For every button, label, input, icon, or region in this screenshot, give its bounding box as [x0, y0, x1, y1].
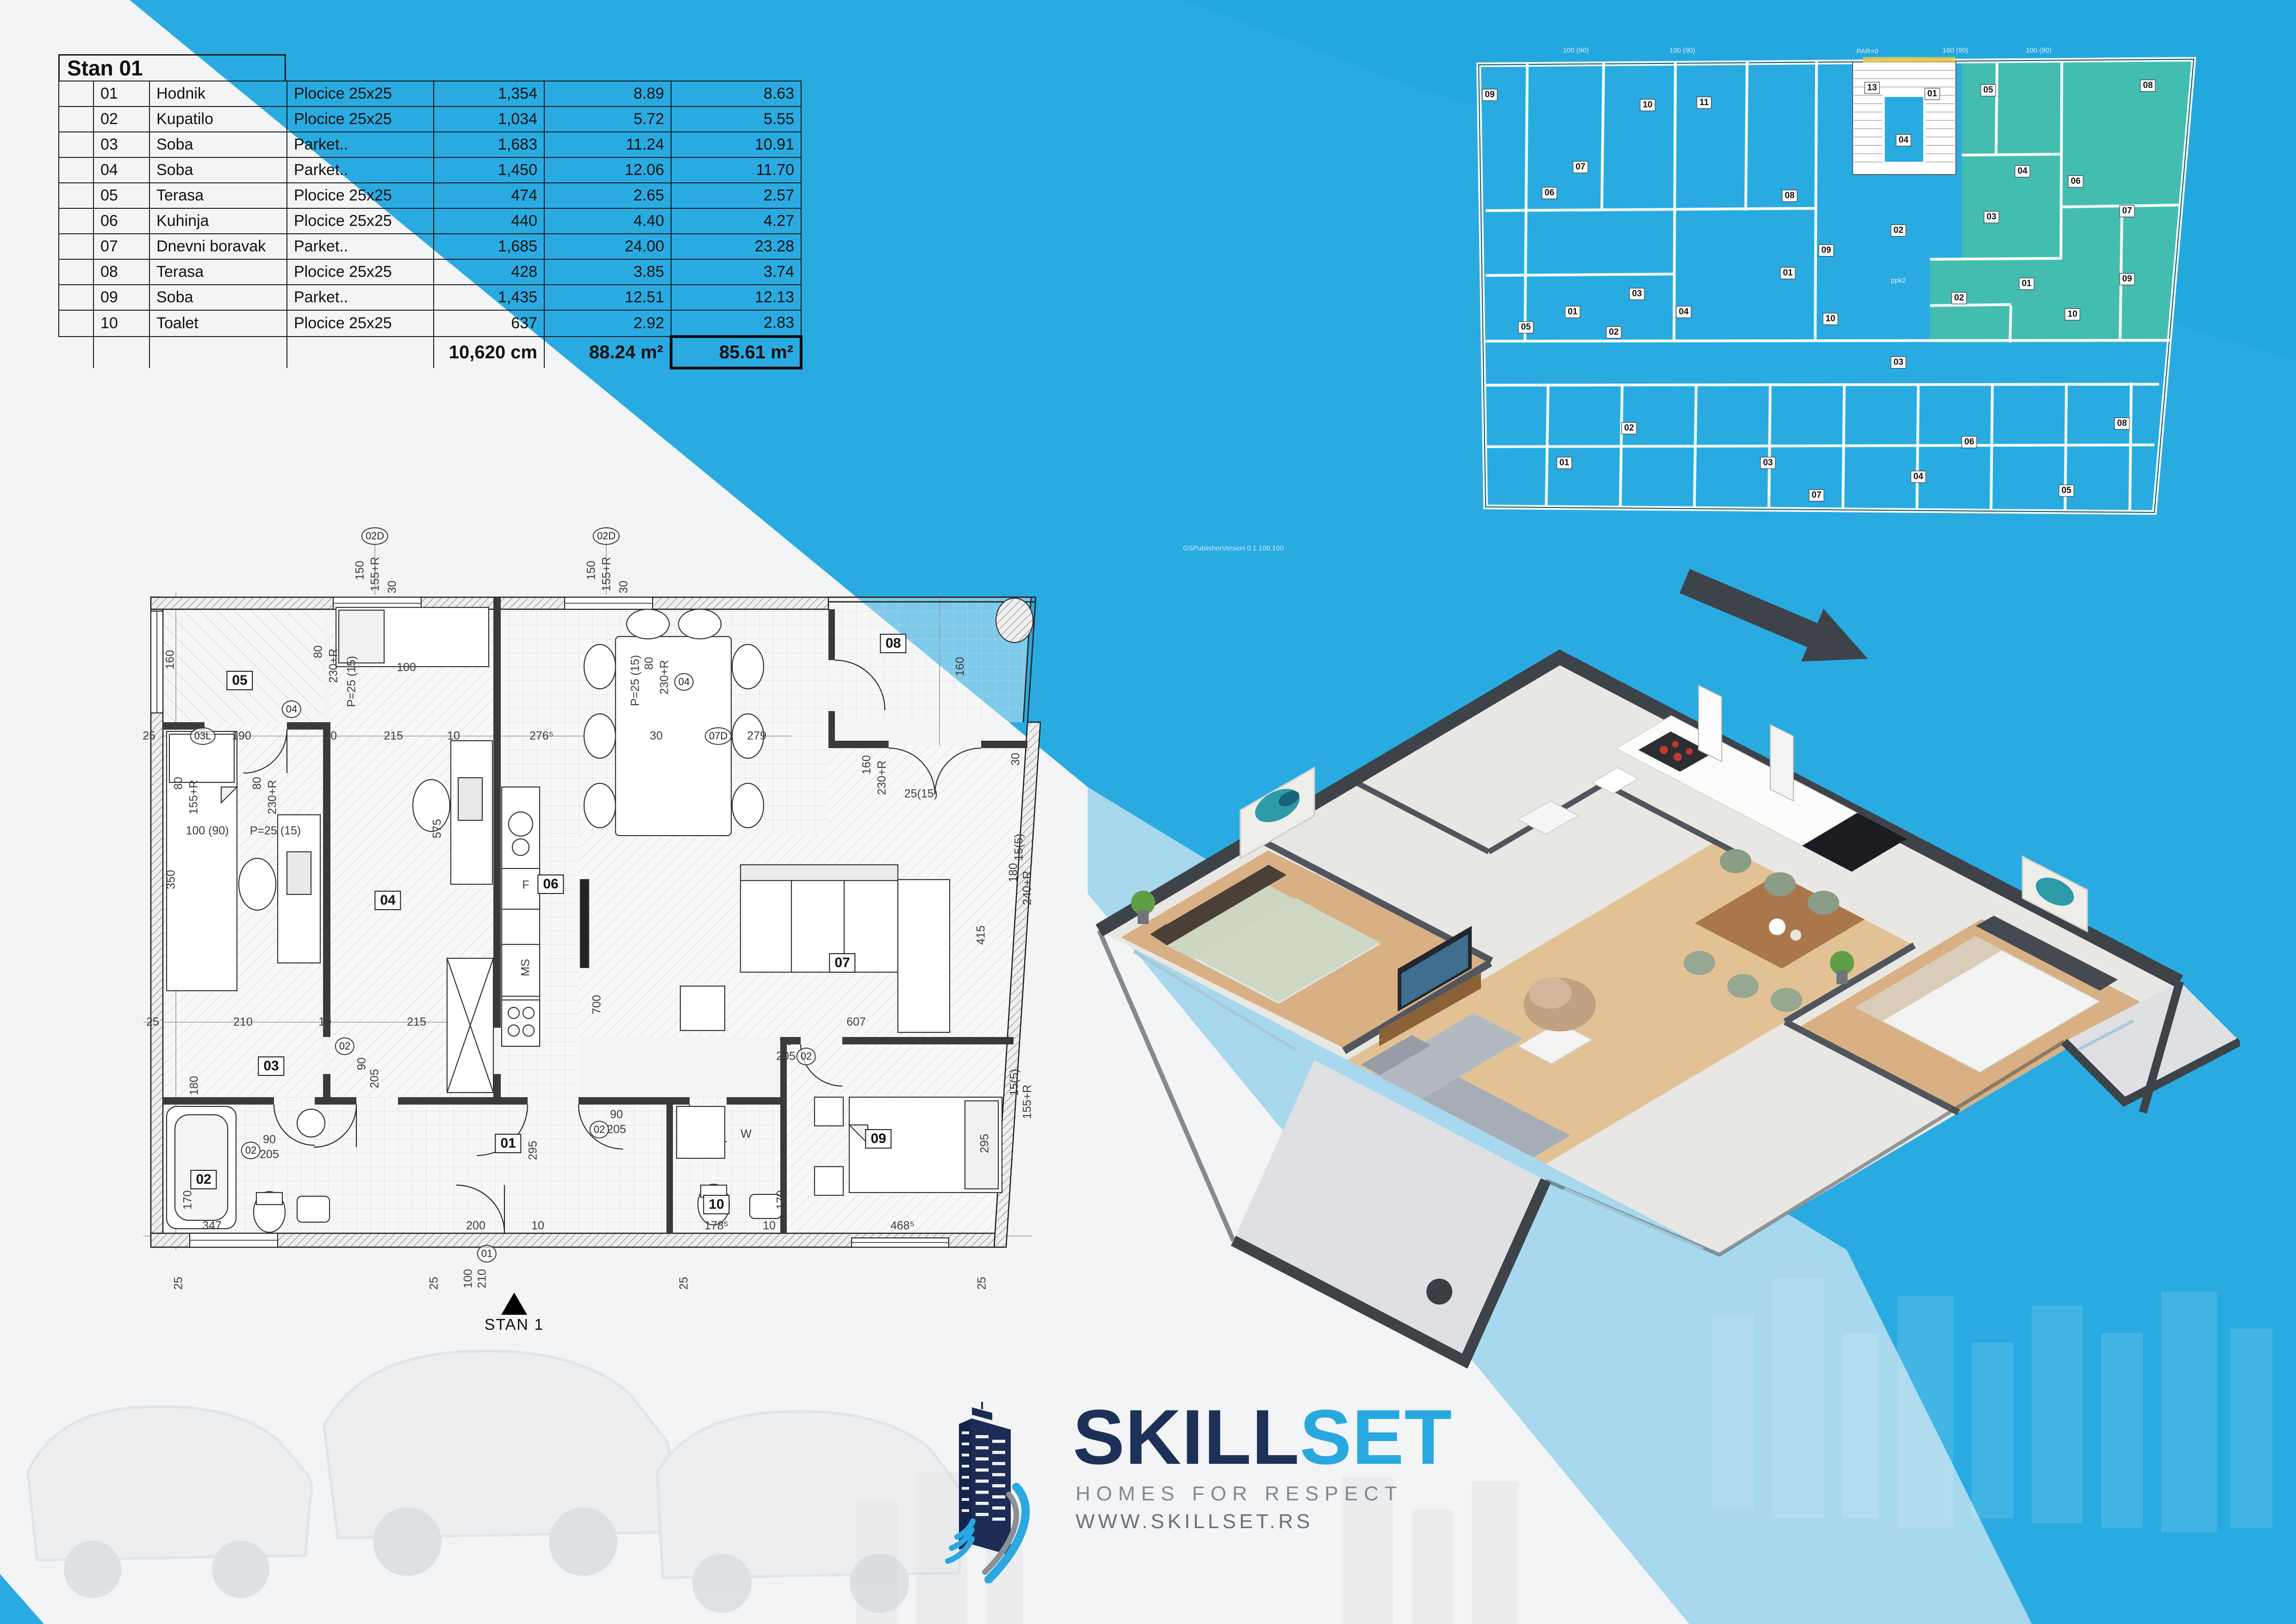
plan-dimension-label: P=25 (15): [345, 656, 359, 707]
overview-unit-label: 11: [1697, 97, 1711, 109]
overview-unit-label: 10: [1640, 99, 1655, 111]
logo-tagline: HOMES FOR RESPECT: [1073, 1482, 1452, 1505]
table-cell: Kuhinja: [149, 208, 287, 234]
overview-unit-label: 06: [2068, 175, 2083, 187]
plan-dimension-label: 30: [324, 730, 337, 743]
plan-dimension-label: 06: [537, 874, 564, 894]
overview-unit-label: 08: [1782, 190, 1797, 202]
plan-dimension-label: 90: [263, 1133, 276, 1147]
plan-dimension-label: 02: [796, 1048, 816, 1065]
table-cell: 23.28: [671, 234, 801, 259]
logo-building-icon: [944, 1398, 1064, 1583]
overview-unit-label: 100 (90): [2026, 47, 2052, 55]
table-title: Stan 01: [58, 54, 286, 81]
table-row: 02KupatiloPlocice 25x251,0345.725.55: [59, 106, 801, 132]
plan-dimension-label: 80: [312, 645, 325, 658]
table-cell: [59, 259, 93, 285]
table-cell: 474: [434, 183, 544, 208]
table-cell: 4.27: [671, 208, 801, 234]
table-cell: 1,354: [434, 81, 544, 106]
blue-corner-triangle: [0, 1574, 44, 1624]
table-cell: 08: [93, 259, 149, 285]
plan-dimension-label: 190: [232, 730, 251, 743]
table-row: 01HodnikPlocice 25x251,3548.898.63: [59, 81, 801, 106]
overview-unit-label: 10: [2065, 308, 2080, 320]
plan-dimension-label: 200: [466, 1219, 485, 1233]
plan-dimension-label: 04: [374, 891, 401, 910]
table-cell: 2.65: [544, 183, 671, 208]
plan-dimension-label: 180: [188, 1076, 201, 1095]
detailed-floor-plan: 02D02D150155+R150155+R303016010080230+RP…: [134, 528, 1055, 1343]
plan-dimension-label: 07D: [705, 727, 732, 745]
overview-unit-label: 07: [1809, 489, 1824, 501]
logo-name-skill: SKILL: [1073, 1393, 1300, 1480]
overview-unit-label: 04: [2015, 165, 2030, 177]
overview-unit-label: 02: [1606, 326, 1621, 338]
table-cell: Plocice 25x25: [287, 259, 434, 285]
table-cell: 1,435: [434, 285, 544, 310]
table-cell: 12.13: [671, 285, 801, 310]
table-row: 06KuhinjaPlocice 25x254404.404.27: [59, 208, 801, 234]
overview-unit-label: 04: [1910, 471, 1926, 483]
plan-dimension-label: 700: [591, 995, 604, 1014]
overview-unit-label: 09: [1818, 244, 1834, 256]
overview-unit-label: 03: [1891, 356, 1906, 369]
plan-dimension-label: 30: [1009, 753, 1023, 766]
table-cell: Plocice 25x25: [287, 106, 434, 132]
overview-unit-label: 01: [1924, 88, 1940, 100]
direction-arrow-icon: [1680, 569, 1868, 662]
plan-dimension-label: 25: [146, 1016, 159, 1029]
plan-dimension-label: 25: [172, 1277, 186, 1290]
plan-dimension-label: 08: [880, 634, 906, 653]
table-cell: 04: [93, 157, 149, 183]
plan-dimension-label: 25: [143, 730, 156, 743]
plan-dimension-label: 205: [368, 1069, 382, 1088]
plan-dimension-label: 230+R: [266, 780, 280, 814]
plan-dimension-label: 295: [978, 1134, 992, 1153]
table-cell: Plocice 25x25: [287, 208, 434, 234]
table-cell: Terasa: [149, 259, 287, 285]
overview-unit-label: 04: [1896, 134, 1911, 146]
publisher-watermark: GSPublisherVersion 0.1.100.100: [1183, 544, 1284, 552]
plan-dimension-label: 155+R: [600, 557, 614, 591]
plan-dimension-label: 02D: [361, 527, 388, 545]
table-cell: 3.85: [544, 259, 671, 285]
plan-dimension-label: 276⁵: [529, 730, 554, 743]
plan-dimension-label: 150: [585, 561, 598, 580]
overview-unit-label: 10: [1823, 313, 1838, 325]
table-cell: 03: [93, 132, 149, 157]
table-cell: 10: [93, 310, 149, 337]
plan-dimension-label: 90: [779, 1035, 792, 1049]
plan-dimension-label: 02: [190, 1170, 217, 1189]
plan-dimension-label: 09: [865, 1129, 891, 1149]
table-cell: Soba: [149, 157, 287, 183]
plan-dimension-label: 10: [703, 1195, 729, 1214]
overview-unit-label: 05: [2059, 485, 2074, 497]
plan-dimension-label: 10: [763, 1219, 776, 1233]
table-cell: 1,685: [434, 234, 544, 259]
total-net-area: 85.61 m²: [671, 337, 801, 368]
plan-dimension-label: 90: [610, 1108, 623, 1122]
table-cell: 1,034: [434, 106, 544, 132]
table-row: 04SobaParket..1,45012.0611.70: [59, 157, 801, 183]
plan-dimension-label: 05: [226, 671, 253, 690]
table-cell: 8.89: [544, 81, 671, 106]
table-cell: [59, 132, 93, 157]
table-cell: 4.40: [544, 208, 671, 234]
plan-dimension-label: 170: [181, 1190, 195, 1210]
table-cell: [59, 183, 93, 208]
total-length: 10,620 cm: [434, 337, 544, 368]
plan-dimension-label: 10: [447, 730, 460, 743]
plan-dimension-label: 80: [251, 777, 264, 790]
overview-unit-label: 01: [1780, 267, 1795, 279]
plan-dimension-label: 02: [241, 1142, 261, 1159]
table-body: 01HodnikPlocice 25x251,3548.898.6302Kupa…: [59, 81, 801, 337]
plan-dimension-label: 30: [650, 730, 663, 743]
plan-dimension-label: 205: [607, 1123, 626, 1137]
plan-dimension-label: 155+R: [369, 557, 382, 591]
table-cell: Plocice 25x25: [287, 81, 434, 106]
plan-dimension-label: 10: [318, 1016, 331, 1029]
table-cell: [59, 208, 93, 234]
plan-dimension-label: 25(15): [904, 787, 938, 801]
table-cell: Soba: [149, 285, 287, 310]
plan-dimension-label: 160: [860, 755, 874, 775]
plan-dimension-label: 15(5): [1013, 834, 1026, 861]
table-row: 08TerasaPlocice 25x254283.853.74: [59, 259, 801, 285]
overview-unit-label: 13: [1864, 82, 1879, 94]
overview-unit-label: 03: [1760, 457, 1775, 469]
overview-unit-label: 09: [1482, 89, 1497, 101]
overview-unit-label: 06: [1961, 436, 1977, 448]
table-cell: 11.70: [671, 157, 801, 183]
overview-unit-label: 05: [1518, 321, 1533, 333]
plan-dimension-label: 295: [527, 1141, 540, 1160]
plan-dimension-label: 215: [407, 1016, 426, 1029]
plan-dimension-label: 02: [335, 1037, 355, 1055]
totals-row: 10,620 cm 88.24 m² 85.61 m²: [59, 337, 801, 368]
overview-unit-label: PAR=0: [1857, 48, 1879, 56]
overview-unit-label: 02: [1621, 422, 1636, 434]
plan-dimension-label: 07: [829, 953, 855, 973]
table-cell: 440: [434, 208, 544, 234]
plan-dimension-label: 350: [165, 870, 178, 889]
plan-dimension-label: 80: [643, 657, 656, 670]
plan-dimension-label: 80: [172, 777, 186, 790]
table-row: 05TerasaPlocice 25x254742.652.57: [59, 183, 801, 208]
overview-unit-label: 07: [1573, 161, 1588, 173]
overview-unit-label: 04: [1676, 306, 1691, 318]
table-cell: 06: [93, 208, 149, 234]
table-cell: [59, 81, 93, 106]
overview-labels: PAR=0100 (90)100 (90)160 (90)100 (90)091…: [1465, 44, 2247, 530]
plan-dimension-label: 15(5): [1008, 1069, 1021, 1096]
plan-dimension-label: 205: [776, 1050, 796, 1063]
table-cell: Parket..: [287, 285, 434, 310]
table-cell: 12.06: [544, 157, 671, 183]
plan-dimension-label: 04: [282, 700, 301, 718]
overview-unit-label: 01: [2019, 278, 2034, 290]
table-cell: Kupatilo: [149, 106, 287, 132]
overview-unit-label: 06: [1542, 187, 1557, 199]
plan-dimension-label: 178⁵: [704, 1219, 728, 1233]
overview-unit-label: 03: [1629, 288, 1644, 300]
plan-dimension-label: 03L: [190, 727, 216, 745]
table-cell: 01: [93, 81, 149, 106]
table-cell: 05: [93, 183, 149, 208]
room-data-table: 01HodnikPlocice 25x251,3548.898.6302Kupa…: [58, 81, 803, 369]
logo-website-url[interactable]: WWW.SKILLSET.RS: [1073, 1510, 1452, 1533]
overview-unit-label: 09: [2119, 273, 2134, 285]
overview-unit-label: 03: [1984, 211, 1999, 223]
plan-dimension-label: 215: [384, 730, 403, 743]
plan-dimension-label: 02D: [593, 527, 620, 545]
logo-name-set: SET: [1300, 1393, 1452, 1480]
overview-unit-label: 160 (90): [1942, 47, 1968, 55]
table-cell: Soba: [149, 132, 287, 157]
table-cell: 07: [93, 234, 149, 259]
table-row: 09SobaParket..1,43512.5112.13: [59, 285, 801, 310]
table-cell: 1,683: [434, 132, 544, 157]
table-row: 07Dnevni boravakParket..1,68524.0023.28: [59, 234, 801, 259]
table-cell: 11.24: [544, 132, 671, 157]
table-cell: Terasa: [149, 183, 287, 208]
plan-dimension-label: 279: [747, 730, 766, 743]
table-cell: [59, 157, 93, 183]
plan-dimension-label: 205: [260, 1148, 279, 1162]
overview-unit-label: ppk2: [1891, 277, 1906, 285]
table-cell: 5.55: [671, 106, 801, 132]
logo-text-block: SKILLSET HOMES FOR RESPECT WWW.SKILLSET.…: [1073, 1398, 1452, 1533]
overview-unit-label: 01: [1565, 306, 1580, 318]
table-row: 10ToaletPlocice 25x256372.922.83: [59, 310, 801, 337]
table-cell: [59, 106, 93, 132]
table-cell: Dnevni boravak: [149, 234, 287, 259]
plan-dimension-label: 150: [354, 561, 367, 580]
table-cell: Parket..: [287, 234, 434, 259]
table-cell: 2.57: [671, 183, 801, 208]
plan-dimension-label: 415: [975, 925, 988, 945]
overview-unit-label: 01: [1556, 457, 1572, 469]
table-cell: Parket..: [287, 157, 434, 183]
plan-dimension-label: 30: [386, 581, 399, 593]
plan-dimension-label: P=25 (15): [250, 824, 301, 838]
total-gross-area: 88.24 m²: [544, 337, 671, 368]
table-cell: 637: [434, 310, 544, 337]
plan-dimension-label: 03: [258, 1056, 284, 1076]
logo-name: SKILLSET: [1073, 1398, 1452, 1476]
room-table: Stan 01 01HodnikPlocice 25x251,3548.898.…: [58, 54, 803, 369]
table-cell: 2.92: [544, 310, 671, 337]
table-cell: Hodnik: [149, 81, 287, 106]
plan-dimension-label: MS: [519, 959, 533, 976]
table-cell: 5.72: [544, 106, 671, 132]
overview-unit-label: 100 (90): [1669, 47, 1695, 55]
table-cell: 8.63: [671, 81, 801, 106]
table-row: 03SobaParket..1,68311.2410.91: [59, 132, 801, 157]
plan-dimension-label: 100: [462, 1269, 475, 1288]
plan-dimension-label: 170: [775, 1190, 788, 1210]
table-cell: 3.74: [671, 259, 801, 285]
plan-dimension-label: 607: [846, 1016, 866, 1029]
plan-dimension-label: F: [522, 879, 529, 892]
plan-dimension-label: 04: [674, 673, 694, 691]
table-cell: Parket..: [287, 132, 434, 157]
plan-dimension-label: 02: [590, 1121, 609, 1138]
table-cell: 09: [93, 285, 149, 310]
table-cell: 1,450: [434, 157, 544, 183]
plan-dimension-label: 230+R: [876, 761, 889, 795]
brochure-page: Stan 01 01HodnikPlocice 25x251,3548.898.…: [0, 0, 2296, 1624]
overview-unit-label: 08: [2114, 418, 2129, 430]
overview-unit-label: 05: [1980, 84, 1996, 96]
plan-dimension-label: 240+R: [1021, 871, 1034, 905]
skillset-logo: SKILLSET HOMES FOR RESPECT WWW.SKILLSET.…: [944, 1398, 1452, 1583]
plan-dimension-label: 468⁵: [890, 1219, 915, 1233]
plan-dimension-label: 01: [477, 1245, 497, 1262]
table-cell: Plocice 25x25: [287, 183, 434, 208]
plan-dimension-label: 155+R: [1021, 1085, 1034, 1119]
plan-dimension-label: 160: [954, 657, 967, 676]
plan-dimension-label: 01: [495, 1134, 521, 1153]
apartment-3d-render: [1055, 532, 2240, 1426]
table-cell: 24.00: [544, 234, 671, 259]
faded-cars: [28, 1351, 964, 1613]
plan-dimension-label: 100: [397, 661, 416, 675]
table-cell: 02: [93, 106, 149, 132]
plan-dimension-label: W: [740, 1128, 752, 1141]
table-cell: [59, 285, 93, 310]
table-cell: [59, 234, 93, 259]
plan-dimension-label: 25: [976, 1277, 989, 1290]
overview-unit-label: 100 (90): [1563, 47, 1589, 55]
overview-unit-label: 02: [1951, 292, 1966, 304]
overview-unit-label: 02: [1891, 225, 1906, 237]
building-overview-plan: PAR=0100 (90)100 (90)160 (90)100 (90)091…: [1465, 44, 2247, 530]
plan-dimension-label: 25: [678, 1277, 691, 1290]
plan-dimension-label: 210: [233, 1016, 253, 1029]
plan-dimension-label: 30: [617, 581, 631, 593]
table-cell: 10.91: [671, 132, 801, 157]
plan-dimension-label: 230+R: [658, 660, 672, 694]
plan-dimension-label: P=25 (15): [629, 655, 642, 706]
plan-dimension-label: 90: [355, 1057, 369, 1070]
table-cell: Toalet: [149, 310, 287, 337]
plan-dimension-label: 575: [431, 819, 444, 838]
plan-dimension-label: 160: [164, 650, 177, 669]
overview-unit-label: 08: [2140, 80, 2155, 92]
plan-dimension-label: 180: [1007, 863, 1020, 882]
plan-dimension-label: 155+R: [187, 780, 201, 814]
table-cell: Plocice 25x25: [287, 310, 434, 337]
plan-dimension-label: 347: [202, 1219, 222, 1233]
plan-labels: 02D02D150155+R150155+R303016010080230+RP…: [134, 528, 1055, 1343]
plan-dimension-label: 10: [531, 1219, 544, 1233]
plan-dimension-label: 230+R: [327, 649, 341, 683]
overview-unit-label: 07: [2119, 205, 2134, 217]
table-cell: 428: [434, 259, 544, 285]
table-cell: 2.83: [671, 310, 801, 337]
plan-dimension-label: 25: [428, 1277, 441, 1290]
table-cell: [59, 310, 93, 337]
plan-dimension-label: 210: [476, 1269, 489, 1288]
plan-dimension-label: 100 (90): [186, 824, 229, 838]
table-cell: 12.51: [544, 285, 671, 310]
